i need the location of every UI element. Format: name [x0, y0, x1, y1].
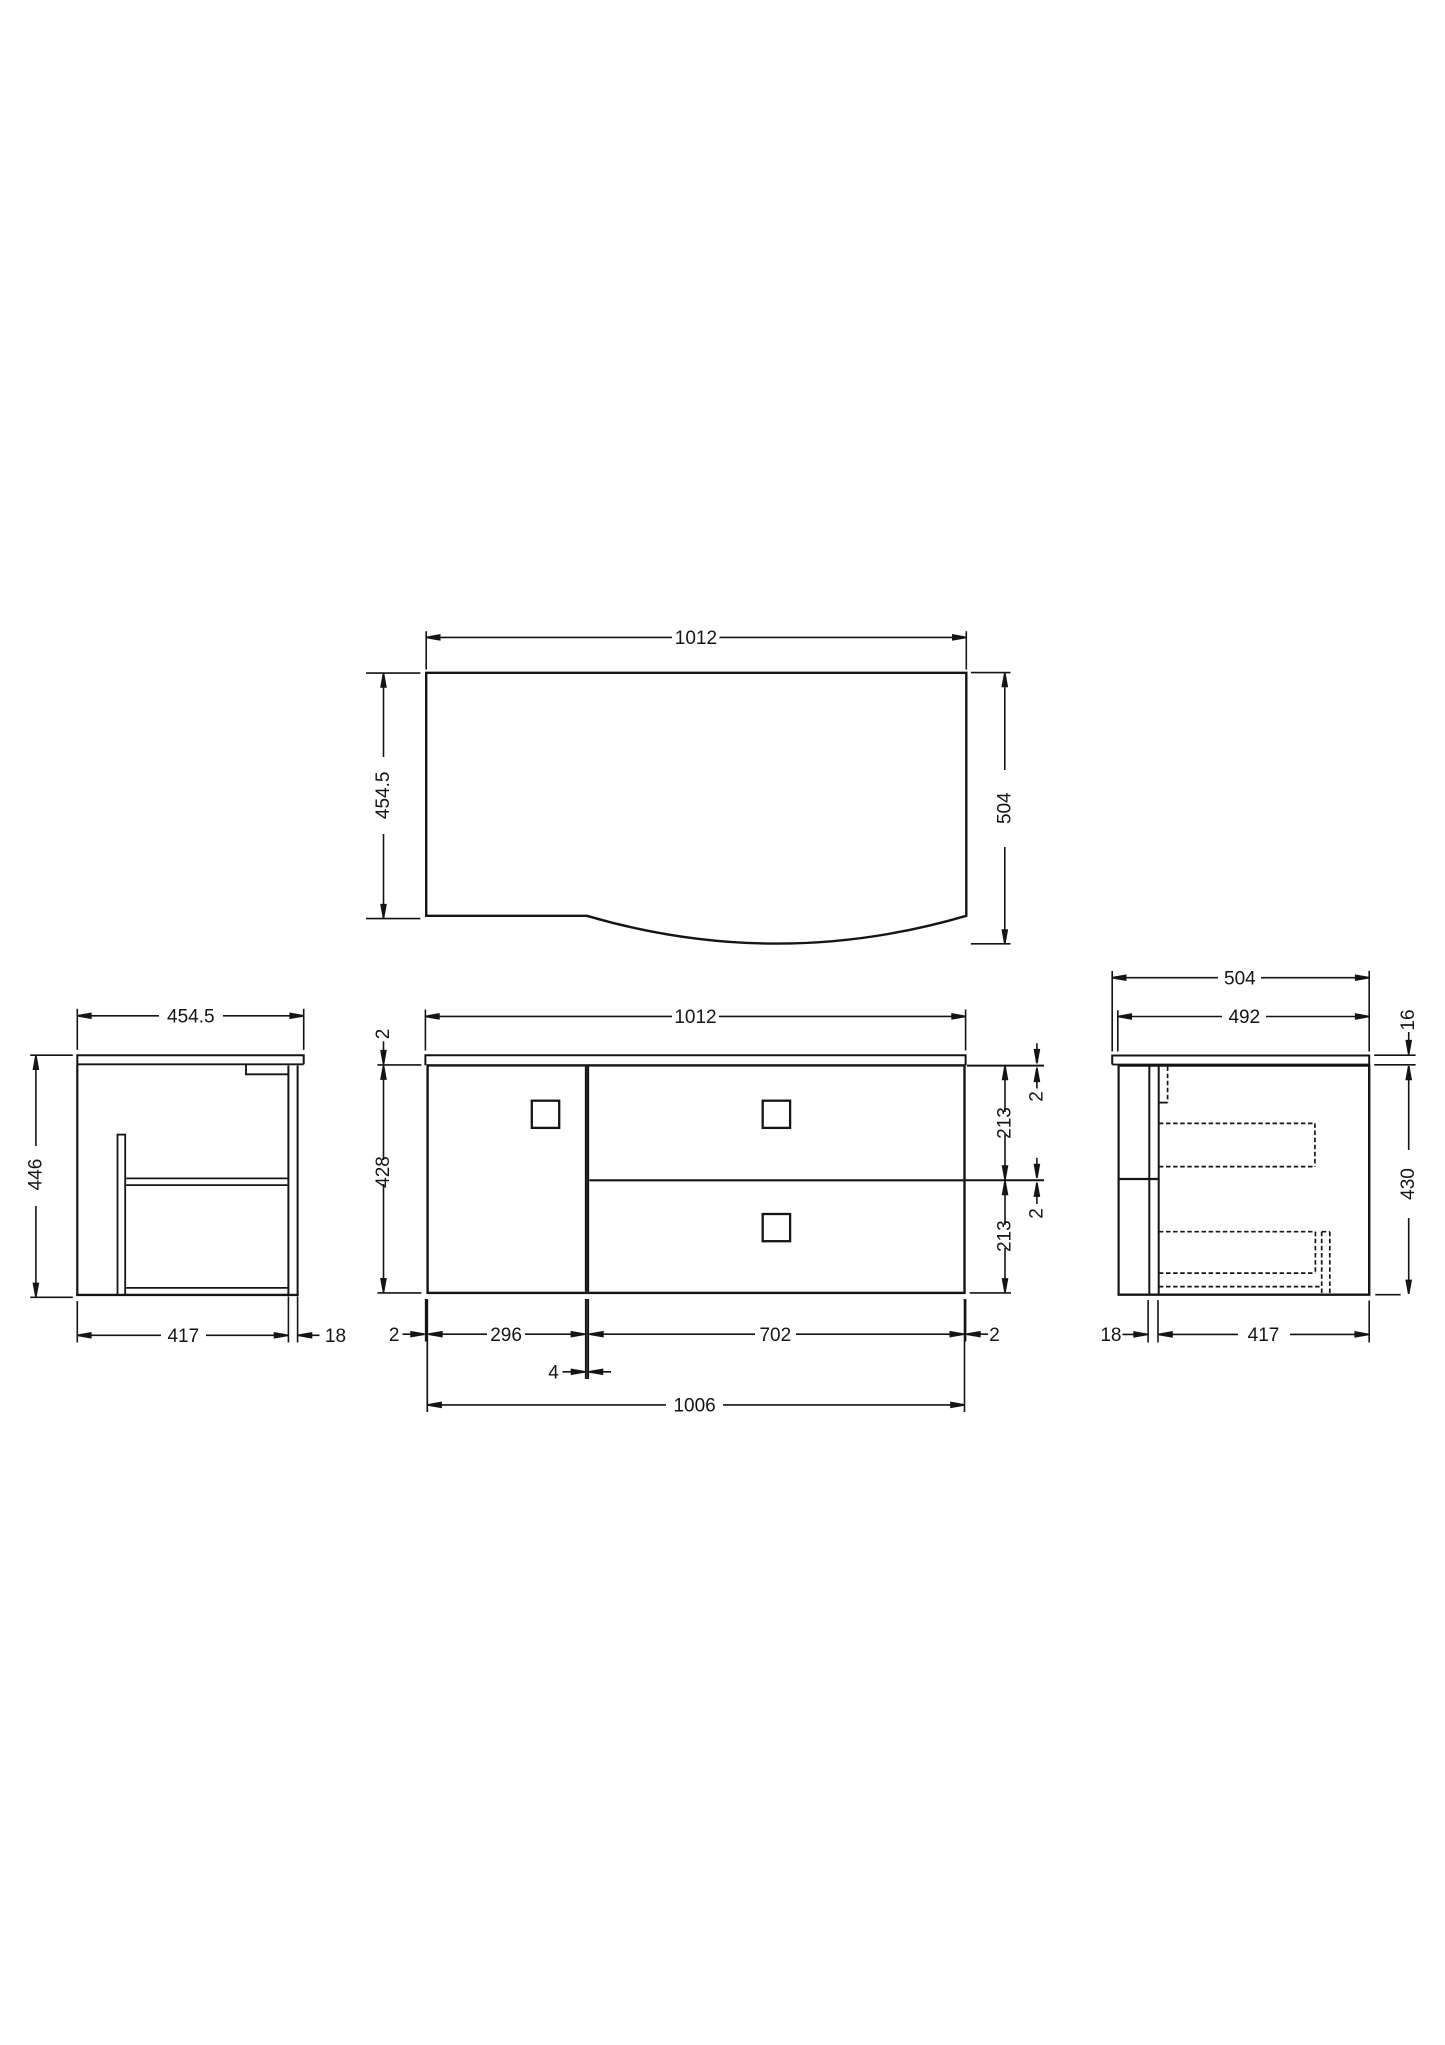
svg-text:702: 702 [759, 1325, 791, 1346]
svg-text:1012: 1012 [674, 1007, 716, 1028]
svg-text:296: 296 [490, 1325, 522, 1346]
svg-text:2: 2 [373, 1029, 394, 1040]
svg-text:492: 492 [1228, 1007, 1260, 1028]
svg-text:504: 504 [994, 792, 1015, 824]
svg-text:18: 18 [1100, 1325, 1121, 1346]
svg-text:213: 213 [995, 1220, 1016, 1252]
svg-text:18: 18 [325, 1326, 346, 1347]
svg-text:504: 504 [1224, 968, 1256, 989]
svg-text:4: 4 [548, 1363, 559, 1384]
svg-text:1012: 1012 [675, 628, 717, 649]
svg-text:1006: 1006 [673, 1396, 715, 1417]
svg-text:417: 417 [1248, 1325, 1280, 1346]
svg-text:2: 2 [989, 1325, 1000, 1346]
svg-text:454.5: 454.5 [167, 1007, 215, 1028]
svg-text:417: 417 [167, 1326, 199, 1347]
svg-text:2: 2 [389, 1325, 400, 1346]
svg-text:446: 446 [26, 1159, 47, 1191]
svg-text:454.5: 454.5 [373, 772, 394, 820]
svg-text:213: 213 [995, 1107, 1016, 1139]
svg-text:2: 2 [1026, 1208, 1047, 1219]
svg-text:430: 430 [1398, 1168, 1419, 1200]
svg-text:2: 2 [1026, 1091, 1047, 1102]
svg-text:16: 16 [1398, 1009, 1419, 1030]
svg-text:428: 428 [373, 1156, 394, 1188]
